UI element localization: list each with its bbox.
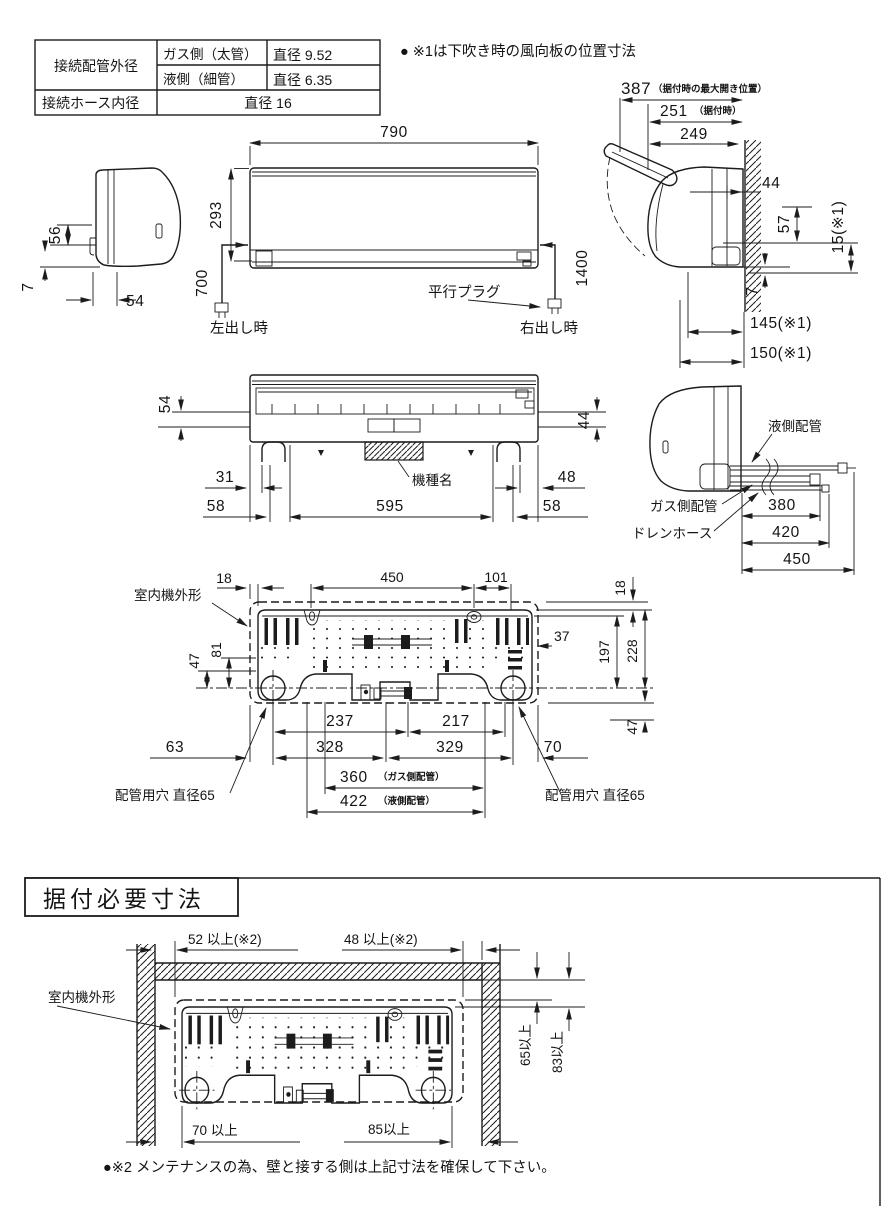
note-1: ● ※1は下吹き時の風向板の位置寸法 xyxy=(400,42,636,60)
plug-label: 平行プラグ xyxy=(428,284,501,301)
dim-145: 145(※1) xyxy=(750,315,812,332)
dim-101: 101 xyxy=(484,569,508,585)
dim-58-left: 58 xyxy=(207,498,225,515)
dim-1400: 1400 xyxy=(574,250,591,287)
pipe-od-label: 接続配管外径 xyxy=(54,58,138,74)
dim-251-note: （据付時） xyxy=(694,105,742,117)
dim-57: 57 xyxy=(776,215,793,233)
gas-pipe-label: ガス側配管 xyxy=(650,499,718,514)
liquid-row-value: 直径 6.35 xyxy=(273,72,332,88)
dim-44-bottom: 44 xyxy=(576,411,593,429)
left-wall-hatch xyxy=(137,944,155,1146)
wall-hatch xyxy=(746,140,761,312)
dim-18-left: 18 xyxy=(216,570,232,586)
dim-85-min: 85以上 xyxy=(368,1122,410,1137)
dim-422: 422 xyxy=(340,793,368,810)
dim-56: 56 xyxy=(47,226,64,244)
dim-70: 70 xyxy=(544,739,562,756)
dim-387: 387 xyxy=(621,79,651,98)
dim-37: 37 xyxy=(554,628,570,644)
drawing-canvas: 接続配管外径 ガス側（太管） 直径 9.52 液側（細管） 直径 6.35 接続… xyxy=(0,0,895,1231)
drain-hose-label: ドレンホース xyxy=(632,526,712,541)
pipe-hole-label-right: 配管用穴 直径65 xyxy=(545,788,645,803)
liquid-pipe-label: 液側配管 xyxy=(768,419,822,434)
dim-54-bottom: 54 xyxy=(157,395,174,413)
piping-side-view: 液側配管 ガス側配管 ドレンホース 380 420 450 xyxy=(632,386,856,575)
unit-outline-label: 室内機外形 xyxy=(134,587,202,603)
dim-83-min: 83以上 xyxy=(550,1031,565,1073)
installation-drawing: 接続配管外径 ガス側（太管） 直径 9.52 液側（細管） 直径 6.35 接続… xyxy=(0,0,895,1231)
dim-7-left: 7 xyxy=(20,282,37,291)
dim-360-note: （ガス側配管） xyxy=(378,771,445,783)
gas-row-value: 直径 9.52 xyxy=(273,47,332,63)
dim-293: 293 xyxy=(208,201,225,229)
top-wall-hatch xyxy=(155,963,500,980)
note-2: ●※2 メンテナンスの為、壁と接する側は上記寸法を確保して下さい。 xyxy=(103,1159,556,1176)
dim-450: 450 xyxy=(783,551,811,568)
dim-63: 63 xyxy=(166,739,184,756)
dim-387-note: （据付時の最大開き位置） xyxy=(653,83,767,95)
dim-197: 197 xyxy=(596,640,612,664)
model-label: 機種名 xyxy=(412,473,453,488)
right-outlet-label: 右出し時 xyxy=(520,320,578,337)
dim-251: 251 xyxy=(660,103,688,120)
dim-249: 249 xyxy=(680,126,708,143)
left-outlet-label: 左出し時 xyxy=(210,320,268,337)
dim-47-right: 47 xyxy=(624,719,640,735)
hose-id-value: 直径 16 xyxy=(244,95,292,111)
dim-52-min: 52 以上(※2) xyxy=(188,932,262,947)
right-wall-hatch xyxy=(482,980,500,1146)
model-name-plate xyxy=(365,442,423,460)
dim-328: 328 xyxy=(316,739,344,756)
dim-31: 31 xyxy=(216,469,234,486)
dim-237: 237 xyxy=(326,713,354,730)
dim-15: 15(※1) xyxy=(830,201,847,254)
dim-18-right: 18 xyxy=(612,580,628,596)
dim-54: 54 xyxy=(126,293,144,310)
bottom-front-view: 機種名 54 44 31 48 58 595 58 xyxy=(157,375,606,522)
air-flap xyxy=(604,144,677,186)
dim-65-min: 65以上 xyxy=(518,1024,533,1066)
right-side-view: 387 （据付時の最大開き位置） 251 （据付時） 249 44 57 15(… xyxy=(604,79,858,368)
dim-360: 360 xyxy=(340,769,368,786)
dim-450-plate: 450 xyxy=(380,569,404,585)
dim-595: 595 xyxy=(376,498,404,515)
install-clearance-section: 据付必要寸法 室内機外形 52 以上(※2) 48 以上(※2) 65以上 83… xyxy=(25,878,880,1206)
dim-217: 217 xyxy=(442,713,470,730)
dim-228: 228 xyxy=(624,639,640,663)
unit-outline-label-install: 室内機外形 xyxy=(48,989,116,1005)
back-plate-diagram: 室内機外形 18 450 101 18 37 197 228 47 47 81 … xyxy=(115,569,654,818)
dim-48: 48 xyxy=(558,469,576,486)
dim-58-right: 58 xyxy=(543,498,561,515)
pipe-hole-label-left: 配管用穴 直径65 xyxy=(115,788,215,803)
dim-700: 700 xyxy=(194,269,211,297)
dim-48-min: 48 以上(※2) xyxy=(344,932,418,947)
dim-81: 81 xyxy=(208,642,224,658)
liquid-row-name: 液側（細管） xyxy=(163,72,244,87)
dim-790: 790 xyxy=(380,124,408,141)
dim-380: 380 xyxy=(768,497,796,514)
left-side-view: 56 7 54 xyxy=(20,168,180,310)
spec-table: 接続配管外径 ガス側（太管） 直径 9.52 液側（細管） 直径 6.35 接続… xyxy=(35,40,380,115)
section-title: 据付必要寸法 xyxy=(43,886,205,912)
hose-id-label: 接続ホース内径 xyxy=(42,95,139,111)
dim-422-note: （液側配管） xyxy=(378,795,435,807)
dim-70-min: 70 以上 xyxy=(192,1123,238,1138)
gas-row-name: ガス側（太管） xyxy=(163,47,258,62)
dim-150: 150(※1) xyxy=(750,345,812,362)
front-view: 790 293 700 1400 平行プラグ 左出し時 右出し時 xyxy=(194,124,591,337)
dim-7-right: 7 xyxy=(744,286,761,295)
dim-329: 329 xyxy=(436,739,464,756)
dim-47-left: 47 xyxy=(186,653,202,669)
louver-dividers xyxy=(272,404,500,414)
dim-420: 420 xyxy=(772,524,800,541)
dim-44-wall: 44 xyxy=(762,175,780,192)
